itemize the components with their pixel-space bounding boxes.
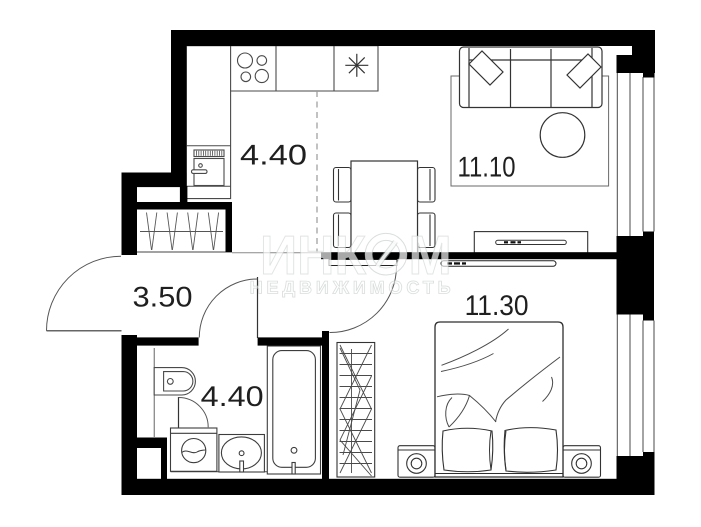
svg-text:4.40: 4.40	[201, 381, 264, 413]
svg-text:11.10: 11.10	[458, 151, 516, 183]
svg-text:3.50: 3.50	[133, 282, 193, 314]
svg-text:ИНК: ИНК	[260, 224, 366, 286]
svg-text:М: М	[409, 224, 452, 286]
svg-text:11.30: 11.30	[465, 290, 529, 322]
svg-text:4.40: 4.40	[240, 139, 307, 171]
